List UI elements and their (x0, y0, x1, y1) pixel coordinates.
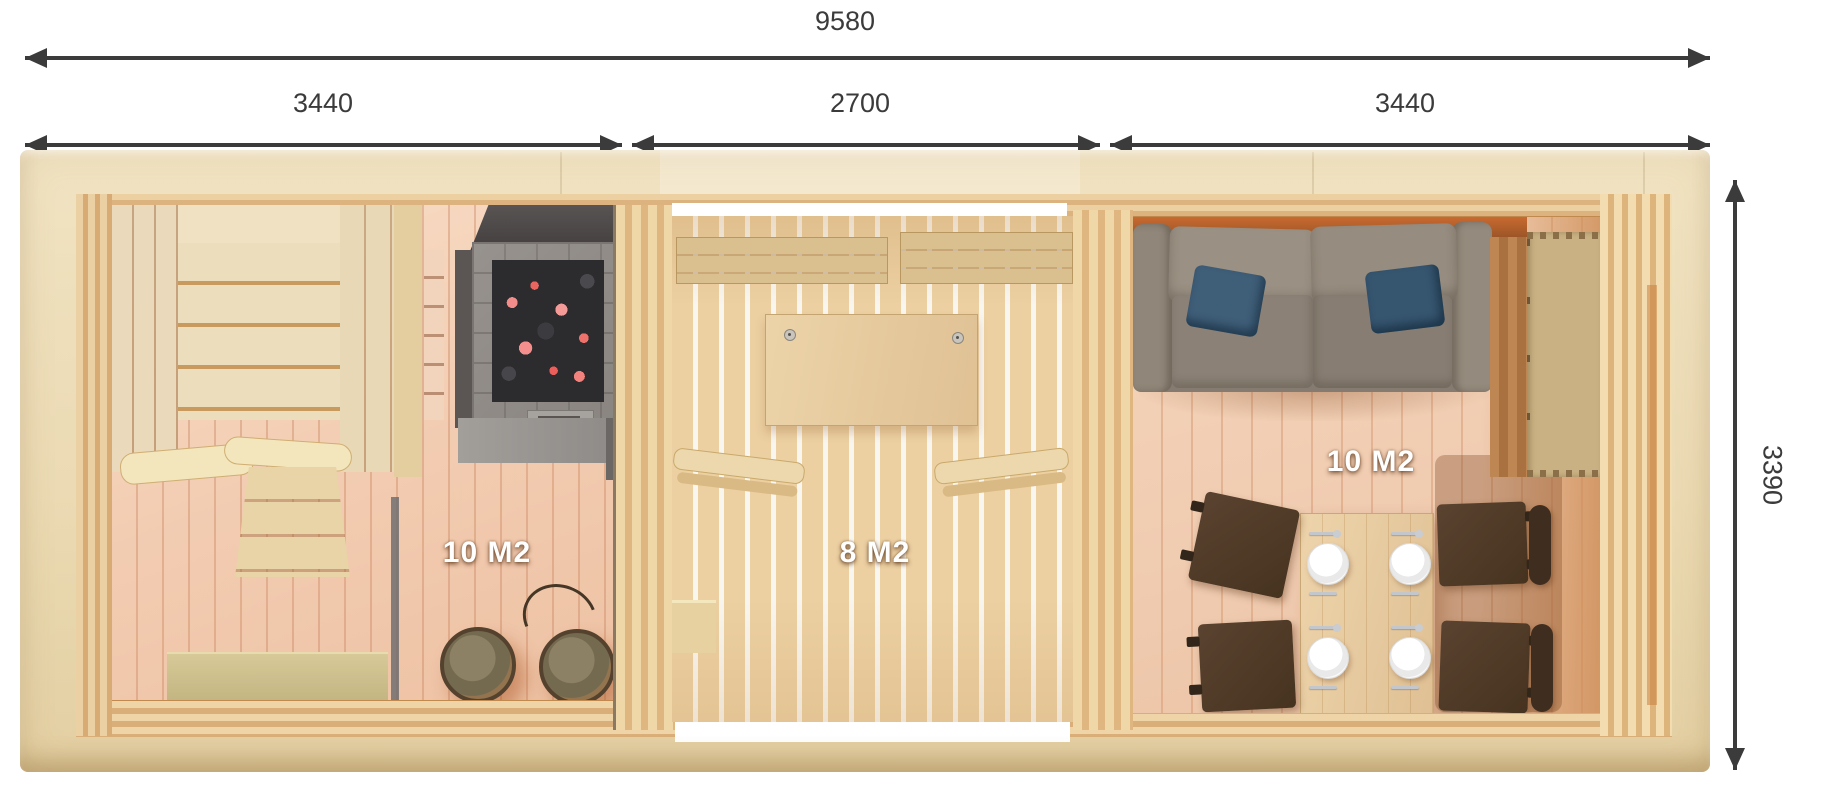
terrace-area-label: 8 M2 (840, 536, 911, 570)
sauna-area-label: 10 M2 (443, 536, 531, 570)
partition-wall-right (1073, 210, 1133, 730)
sauna-low-bench (167, 652, 388, 700)
corner-cabinet (1527, 232, 1600, 477)
arrowhead-left-icon (25, 48, 47, 68)
wall-left (76, 194, 112, 736)
building-outline: 10 M2 8 M2 (20, 150, 1710, 772)
dim-right-section-line (1110, 143, 1710, 147)
lounge-room: 10 M2 (1133, 217, 1600, 713)
partition-wall-left (613, 205, 675, 730)
chair-leg (1186, 636, 1200, 647)
heater-coals (492, 260, 604, 402)
terrace-front-opening (672, 203, 1067, 216)
floor-plan-canvas: 9580 3440 2700 3440 3390 (0, 0, 1825, 798)
lounge-corner-wall-board (1490, 237, 1527, 477)
chair-leg (1189, 684, 1203, 695)
terrace-side-ledge (672, 600, 716, 653)
sauna-bucket (440, 627, 516, 700)
roof-seam (1643, 152, 1645, 194)
cutlery-icon (1391, 592, 1419, 595)
sofa-armrest (1452, 222, 1492, 392)
roof-seam (1312, 152, 1314, 194)
cutlery-icon (1309, 592, 1337, 595)
arrowhead-down-icon (1725, 748, 1745, 770)
dining-chair (1198, 620, 1296, 713)
plate (1389, 543, 1431, 585)
dim-left-section-label: 3440 (293, 88, 353, 119)
lounge-area-label: 10 M2 (1327, 445, 1415, 479)
plate (1307, 543, 1349, 585)
sauna-wall-ladder (424, 250, 444, 420)
cutlery-icon (1309, 686, 1337, 689)
terrace-room: 8 M2 (672, 203, 1073, 742)
dim-middle-section-line (632, 143, 1100, 147)
arrowhead-right-icon (1688, 48, 1710, 68)
dim-total-width-line (25, 56, 1710, 60)
dim-total-width-label: 9580 (815, 6, 875, 37)
dining-chair (1188, 491, 1301, 599)
sofa-floor-shadow (1139, 387, 1489, 421)
sauna-bench-left-planks (112, 205, 178, 472)
cutlery-icon (1309, 532, 1337, 535)
cabinet-dovetail-edge (1527, 232, 1600, 239)
sofa (1133, 240, 1492, 392)
cabinet-joint-edge (1527, 239, 1530, 470)
heater-hearth-edge (606, 418, 613, 480)
wall-right (1600, 194, 1672, 736)
sofa-armrest (1133, 224, 1172, 392)
sauna-room: 10 M2 (112, 205, 613, 700)
wall-right-trim (1647, 285, 1657, 705)
dining-chair (1438, 620, 1530, 713)
sofa-pillow (1364, 264, 1445, 335)
roof-highlight (660, 150, 1080, 194)
roof-seam (560, 152, 562, 194)
plate (1307, 637, 1349, 679)
plate (1389, 637, 1431, 679)
glass-panel (391, 497, 399, 700)
arrowhead-up-icon (1725, 180, 1745, 202)
screw-icon (952, 332, 964, 344)
dim-depth-line (1733, 180, 1737, 770)
sauna-bench-slats (178, 243, 340, 420)
terrace-entrance-opening (675, 722, 1070, 742)
cutlery-icon (1309, 626, 1337, 629)
terrace-top-bench (900, 232, 1073, 284)
chair-backrest (1531, 624, 1553, 712)
sauna-bench-upper-board (178, 205, 340, 245)
sauna-step-stool (235, 467, 350, 577)
cutlery-icon (1391, 686, 1419, 689)
dining-chair (1437, 501, 1529, 586)
chair-leg (1190, 500, 1205, 512)
dim-middle-section-label: 2700 (830, 88, 890, 119)
cutlery-icon (1391, 532, 1419, 535)
terrace-top-bench (676, 237, 888, 284)
heater-hearth-slab (458, 418, 612, 463)
sauna-bench-right-planks (340, 205, 394, 472)
terrace-wall-table (765, 314, 978, 426)
sauna-bench-side-panel (394, 205, 422, 477)
cabinet-dovetail-edge (1527, 470, 1600, 477)
cutlery-icon (1391, 626, 1419, 629)
dim-left-section-line (25, 143, 622, 147)
chair-leg (1180, 549, 1195, 561)
dim-right-section-label: 3440 (1375, 88, 1435, 119)
dining-table (1300, 513, 1434, 713)
screw-icon (784, 329, 796, 341)
sofa-pillow (1185, 264, 1267, 338)
chair-backrest (1529, 505, 1551, 585)
dim-depth-label: 3390 (1757, 445, 1788, 505)
